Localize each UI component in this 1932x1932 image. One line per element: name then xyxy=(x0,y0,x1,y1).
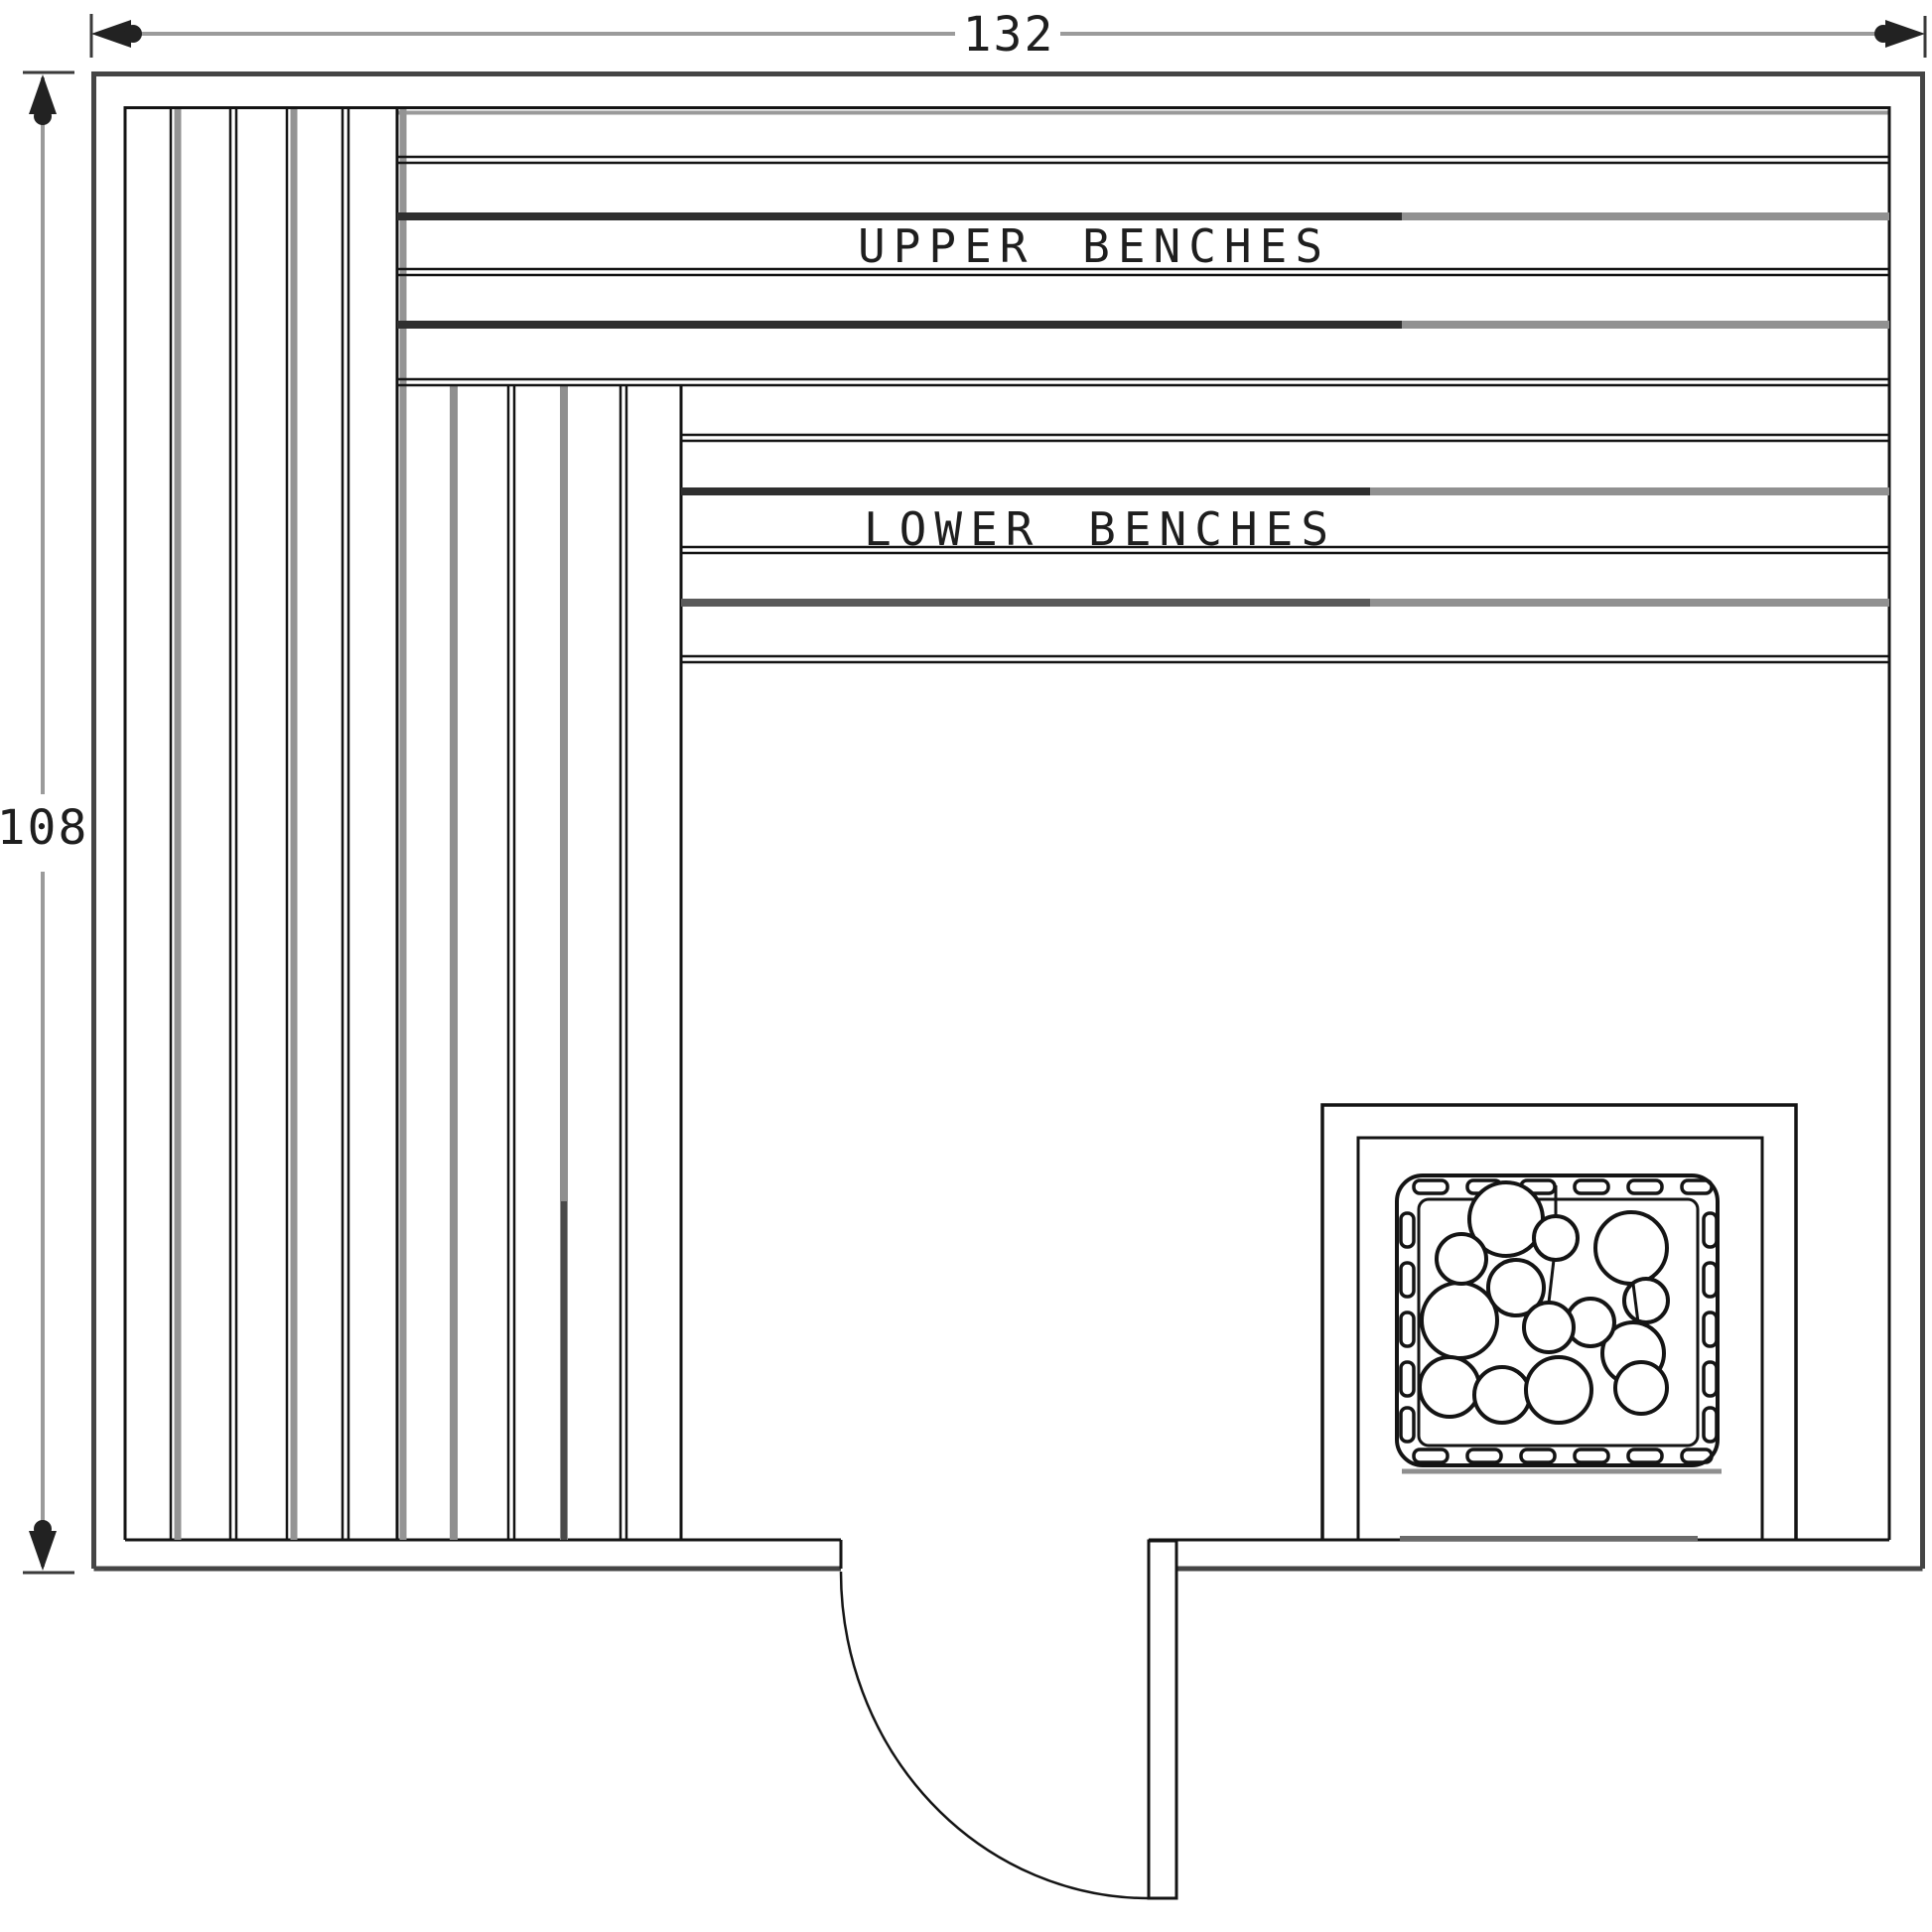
height-dimension-label: 108 xyxy=(0,800,88,856)
heater-shadow xyxy=(1400,1536,1698,1541)
arrow-down-icon xyxy=(29,1520,57,1571)
top-dimension: 132 xyxy=(91,7,1925,63)
arrow-up-icon xyxy=(29,74,57,125)
door xyxy=(841,1541,1176,1898)
floor-plan-canvas: 132 108 xyxy=(0,0,1932,1932)
sauna-floor-plan-drawing: 132 108 xyxy=(0,0,1932,1932)
lower-benches: LOWER BENCHES xyxy=(681,435,1889,662)
heater-rocks xyxy=(1420,1182,1668,1423)
left-dimension: 108 xyxy=(0,72,88,1573)
upper-benches-label: UPPER BENCHES xyxy=(858,219,1330,273)
width-dimension-label: 132 xyxy=(963,7,1055,63)
wall-planks-left xyxy=(171,109,403,1540)
door-swing-arc-icon xyxy=(841,1572,1149,1898)
heater-icon xyxy=(1322,1105,1796,1541)
lower-benches-label: LOWER BENCHES xyxy=(864,502,1336,556)
arrow-left-icon xyxy=(91,20,142,48)
door-leaf xyxy=(1149,1541,1176,1898)
wall-planks-inner xyxy=(454,386,681,1540)
arrow-right-icon xyxy=(1874,20,1925,48)
upper-benches: UPPER BENCHES xyxy=(397,157,1889,385)
